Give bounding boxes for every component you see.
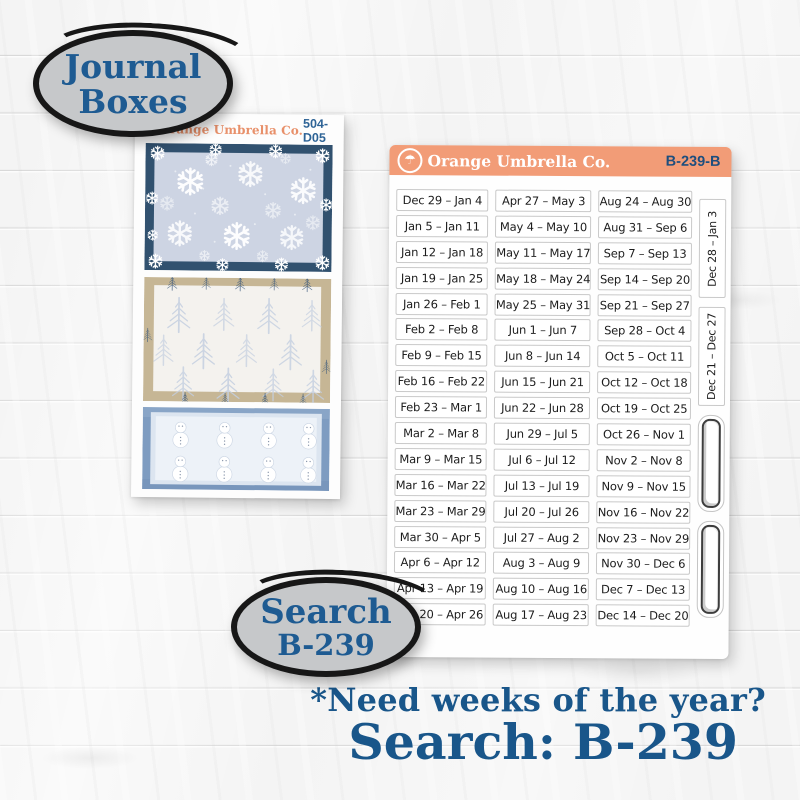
blank-tab-sticker (697, 415, 725, 512)
date-range-sticker: Sep 7 – Sep 13 (598, 242, 692, 265)
date-range-sticker: Jul 27 – Aug 2 (494, 526, 590, 549)
date-label-sticker-sheet: ☂ Orange Umbrella Co. B-239-B Dec 29 – J… (386, 145, 731, 659)
vertical-date-sticker: Dec 28 – Jan 3 (699, 199, 727, 298)
date-range-sticker: Aug 31 – Sep 6 (598, 216, 692, 239)
date-column-3: Aug 24 – Aug 30Aug 31 – Sep 6Sep 7 – Sep… (596, 190, 692, 627)
date-range-sticker: Dec 14 – Dec 20 (596, 604, 690, 627)
footer-search-code: Search: B-239 (310, 718, 766, 768)
date-column-1: Dec 29 – Jan 4Jan 5 – Jan 11Jan 12 – Jan… (394, 189, 489, 626)
date-range-sticker: Jun 8 – Jun 14 (495, 345, 591, 368)
badge-line: Boxes (78, 85, 187, 118)
footer-note: *Need weeks of the year? Search: B-239 (310, 684, 766, 768)
date-range-sticker: Jul 6 – Jul 12 (494, 449, 590, 472)
date-range-sticker: Nov 16 – Nov 22 (597, 501, 691, 524)
sheet-code: B-239-B (666, 154, 721, 170)
date-range-sticker: Aug 24 – Aug 30 (599, 190, 693, 213)
date-range-sticker: Mar 2 – Mar 8 (395, 422, 488, 445)
badge-line: Journal (65, 50, 202, 83)
date-range-sticker: Mar 9 – Mar 15 (395, 448, 488, 471)
date-range-sticker: Feb 16 – Feb 22 (395, 370, 488, 393)
date-range-sticker: Sep 28 – Oct 4 (598, 320, 692, 343)
date-range-sticker: Oct 26 – Nov 1 (597, 423, 691, 446)
date-range-sticker: Aug 17 – Aug 23 (493, 604, 589, 627)
date-range-sticker: Jun 22 – Jun 28 (494, 397, 590, 420)
date-range-sticker: Oct 5 – Oct 11 (598, 346, 692, 369)
product-image: ☂ Orange Umbrella Co. 504-D05 (0, 0, 800, 800)
date-range-sticker: Feb 9 – Feb 15 (395, 344, 488, 367)
journal-box-pine-trees (143, 277, 331, 403)
date-range-sticker: Mar 16 – Mar 22 (394, 474, 487, 497)
date-range-sticker: Nov 23 – Nov 29 (597, 527, 691, 550)
brand-name: Orange Umbrella Co. (427, 151, 610, 171)
date-range-sticker: Feb 2 – Feb 8 (395, 318, 488, 341)
journal-boxes-sticker-sheet: ☂ Orange Umbrella Co. 504-D05 (131, 113, 344, 499)
date-range-sticker: Mar 30 – Apr 5 (394, 526, 487, 549)
badge-line: Search (260, 595, 392, 629)
date-range-sticker: Jun 15 – Jun 21 (494, 371, 590, 394)
date-range-sticker: Jan 26 – Feb 1 (396, 293, 489, 316)
date-range-sticker: May 11 – May 17 (495, 241, 591, 264)
date-range-sticker: Apr 6 – Apr 12 (394, 551, 487, 574)
date-range-sticker: Nov 30 – Dec 6 (596, 553, 690, 576)
date-range-sticker: Sep 14 – Sep 20 (598, 268, 692, 291)
date-range-sticker: Jun 1 – Jun 7 (495, 319, 591, 342)
date-range-sticker: Oct 12 – Oct 18 (597, 371, 691, 394)
journal-box-snowmen (142, 407, 330, 491)
date-range-sticker: Jan 5 – Jan 11 (396, 215, 489, 238)
date-range-sticker: Aug 10 – Aug 16 (493, 578, 589, 601)
date-range-sticker: Aug 3 – Aug 9 (493, 552, 589, 575)
date-range-sticker: Oct 19 – Oct 25 (597, 397, 691, 420)
date-range-sticker: Jul 20 – Jul 26 (494, 500, 590, 523)
vertical-date-sticker: Dec 21 – Dec 27 (698, 307, 726, 406)
date-range-sticker: Jun 29 – Jul 5 (494, 423, 590, 446)
umbrella-icon: ☂ (397, 148, 422, 173)
date-range-sticker: Jul 13 – Jul 19 (494, 474, 590, 497)
date-range-sticker: Nov 9 – Nov 15 (597, 475, 691, 498)
date-range-sticker: Jan 12 – Jan 18 (396, 241, 489, 264)
date-range-sticker: May 25 – May 31 (495, 293, 591, 316)
side-column: Dec 28 – Jan 3 Dec 21 – Dec 27 (697, 199, 727, 627)
badge-line: B-239 (277, 631, 375, 660)
date-range-sticker: Dec 7 – Dec 13 (596, 579, 690, 602)
sheet-code: 504-D05 (303, 116, 333, 144)
date-range-sticker: Feb 23 – Mar 1 (395, 396, 488, 419)
date-range-sticker: Sep 21 – Sep 27 (598, 294, 692, 317)
blank-tab-sticker (697, 521, 725, 618)
date-column-2: Apr 27 – May 3May 4 – May 10May 11 – May… (493, 190, 592, 627)
date-range-sticker: Nov 2 – Nov 8 (597, 449, 691, 472)
right-sheet-header: ☂ Orange Umbrella Co. B-239-B (389, 145, 731, 177)
date-range-sticker: Jan 19 – Jan 25 (396, 267, 489, 290)
date-range-sticker: May 18 – May 24 (495, 267, 591, 290)
journal-box-snowflakes (144, 143, 332, 272)
date-range-sticker: Apr 27 – May 3 (496, 190, 592, 213)
search-badge: Search B-239 (231, 577, 421, 677)
date-range-sticker: Dec 29 – Jan 4 (396, 189, 489, 212)
date-range-sticker: May 4 – May 10 (495, 215, 591, 238)
date-range-sticker: Mar 23 – Mar 29 (394, 500, 487, 523)
journal-boxes-badge: Journal Boxes (33, 30, 233, 137)
date-sticker-grid: Dec 29 – Jan 4Jan 5 – Jan 11Jan 12 – Jan… (387, 175, 732, 627)
